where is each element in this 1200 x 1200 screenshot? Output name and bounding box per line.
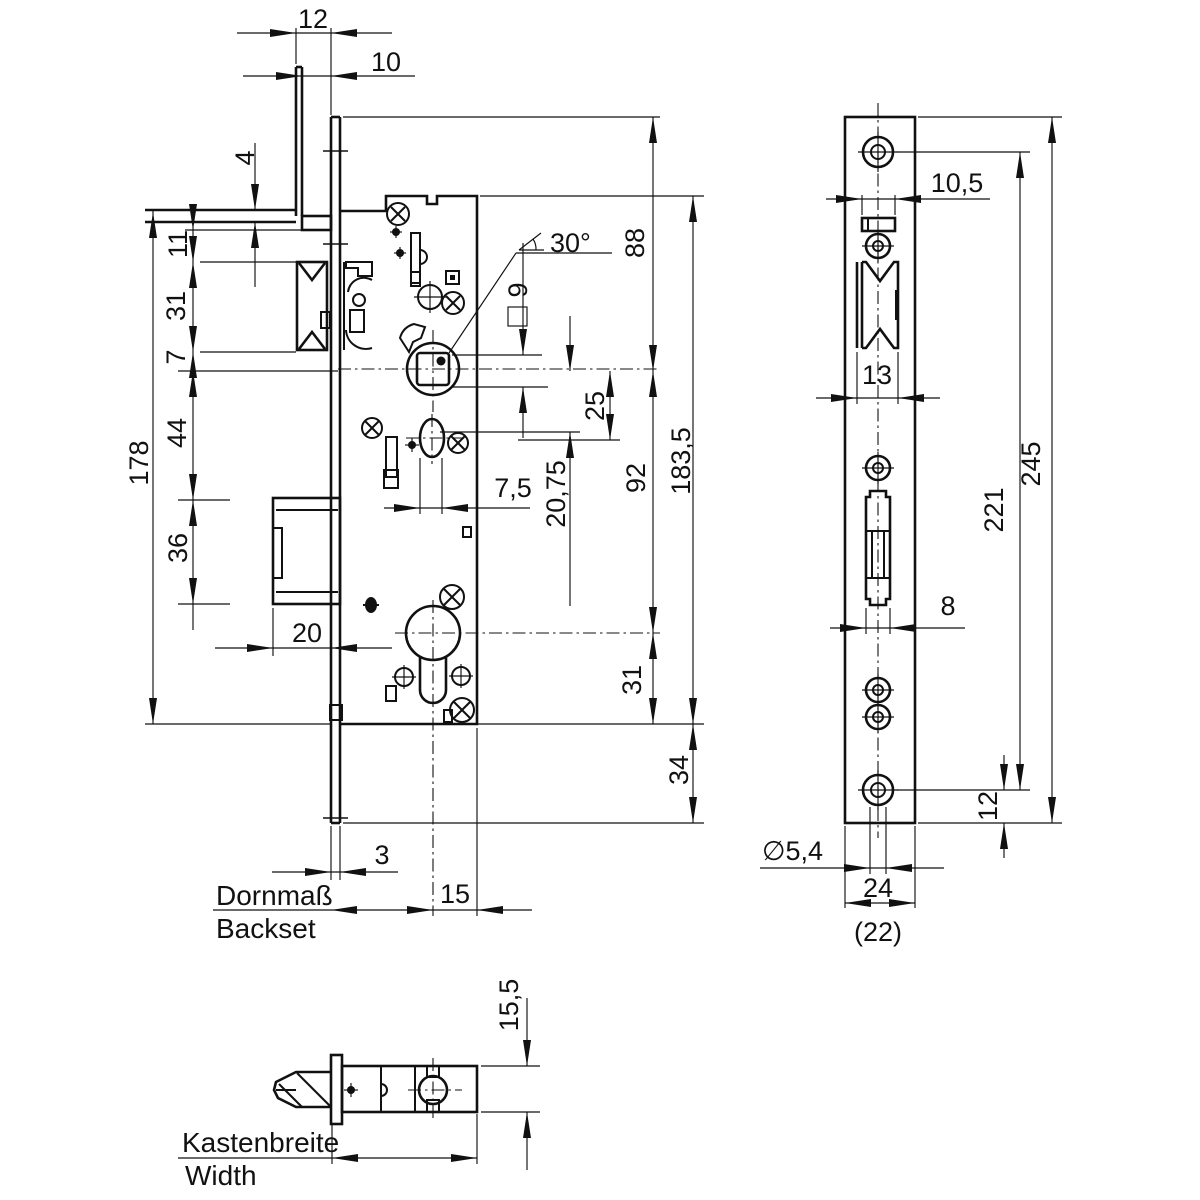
dim-245: 245 [1016,441,1046,486]
lock-drawing-svg: 12 10 4 178 11 31 7 44 36 20 3 Dornmaß B… [0,0,1200,1200]
front-view: 12 10 4 178 11 31 7 44 36 20 3 Dornmaß B… [124,4,704,944]
dim-31-right: 31 [617,665,647,695]
faceplate-view: 10,5 13 8 12 221 245 ∅5,4 24 (22) [760,103,1062,947]
dim-4: 4 [230,150,260,165]
dim-hole-dia: ∅5,4 [762,836,823,866]
faceplate-screw-3 [862,452,894,484]
follower-hub [338,324,660,412]
bottom-lock-body [274,1055,477,1124]
faceplate-edge [323,117,348,823]
bottom-dimensions: 15,5 Kastenbreite Width [178,979,540,1191]
front-dimensions: 12 10 4 178 11 31 7 44 36 20 3 Dornmaß B… [124,4,704,944]
bottom-view: 15,5 Kastenbreite Width [178,979,540,1191]
dim-24: 24 [863,873,893,903]
faceplate-screw-2 [862,230,894,262]
dim-34: 34 [664,755,694,785]
label-width: Width [185,1160,257,1191]
technical-drawing-page: 12 10 4 178 11 31 7 44 36 20 3 Dornmaß B… [0,0,1200,1200]
dim-44: 44 [162,418,192,448]
dim-105: 10,5 [931,168,984,198]
dim-9-square: 9 [503,282,533,297]
dim-3: 3 [374,840,389,870]
dim-25: 25 [580,391,610,421]
dim-15: 15 [440,879,470,909]
faceplate-screw-bottom [858,770,898,810]
dim-31-left: 31 [161,291,191,321]
dim-10-top: 10 [371,47,401,77]
dim-92: 92 [621,463,651,493]
dim-178: 178 [124,440,154,485]
latch-bolt [297,262,330,350]
label-kastenbreite: Kastenbreite [182,1127,339,1158]
dim-13: 13 [862,360,892,390]
dim-88: 88 [620,228,650,258]
dim-20: 20 [292,618,322,648]
dim-7: 7 [161,349,191,364]
dim-36: 36 [163,533,193,563]
dim-1835: 183,5 [666,427,696,495]
faceplate-screw-top [858,132,898,172]
dim-8: 8 [940,591,955,621]
dim-12-screw: 12 [973,791,1003,821]
faceplate-screw-5 [862,701,894,733]
label-backset: Backset [216,913,316,944]
dim-12-top: 12 [298,4,328,34]
cylinder-hole [395,600,660,916]
dim-30deg: 30° [550,228,591,258]
dim-2075: 20,75 [541,460,571,528]
dim-22-alt: (22) [854,917,902,947]
door-profile-section [145,67,331,230]
dim-11: 11 [163,230,193,258]
dim-75: 7,5 [494,473,532,503]
dim-221: 221 [979,487,1009,532]
label-dornmass: Dornmaß [216,880,333,911]
latch-mechanism [344,262,372,350]
dim-155: 15,5 [494,979,524,1032]
